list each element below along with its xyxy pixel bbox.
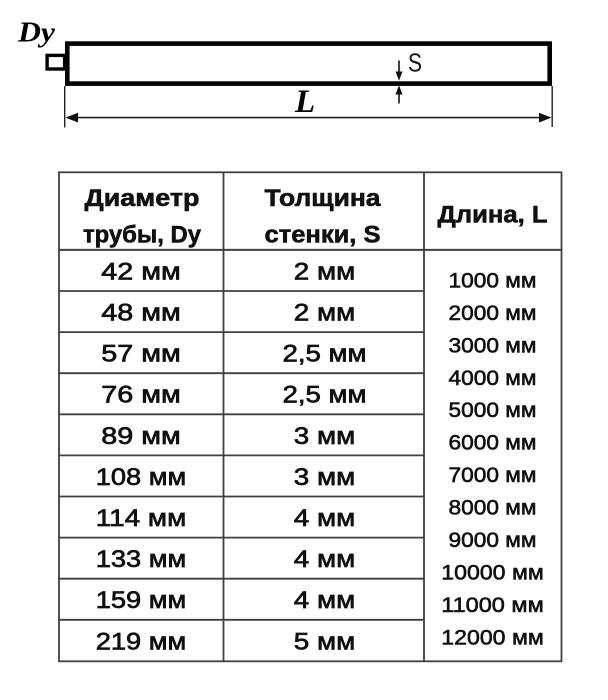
svg-text:Dy: Dy [17, 18, 56, 49]
svg-text:3 мм: 3 мм [294, 423, 356, 450]
svg-text:57 мм: 57 мм [101, 341, 181, 368]
svg-text:стенки, S: стенки, S [265, 222, 381, 249]
svg-text:4000 мм: 4000 мм [449, 366, 537, 390]
svg-text:2 мм: 2 мм [294, 258, 356, 285]
svg-text:8000 мм: 8000 мм [449, 496, 537, 520]
svg-text:2000 мм: 2000 мм [449, 301, 537, 325]
svg-text:10000 мм: 10000 мм [441, 561, 544, 585]
svg-text:5 мм: 5 мм [294, 628, 356, 655]
svg-text:4 мм: 4 мм [294, 587, 356, 614]
svg-text:89 мм: 89 мм [101, 423, 181, 450]
svg-text:1000 мм: 1000 мм [449, 268, 537, 292]
svg-text:2,5 мм: 2,5 мм [283, 382, 367, 409]
svg-text:L: L [294, 84, 315, 120]
svg-text:219 мм: 219 мм [96, 628, 187, 655]
svg-text:3000 мм: 3000 мм [449, 333, 537, 357]
svg-text:3 мм: 3 мм [294, 464, 356, 491]
svg-text:4 мм: 4 мм [294, 546, 356, 573]
svg-text:42 мм: 42 мм [101, 258, 181, 285]
svg-text:76 мм: 76 мм [101, 382, 181, 409]
svg-text:108 мм: 108 мм [96, 464, 187, 491]
svg-text:Диаметр: Диаметр [85, 185, 200, 212]
svg-text:5000 мм: 5000 мм [449, 398, 537, 422]
svg-text:S: S [408, 48, 422, 78]
svg-text:11000 мм: 11000 мм [441, 593, 544, 617]
svg-text:6000 мм: 6000 мм [449, 431, 537, 455]
svg-text:Длина, L: Длина, L [438, 202, 548, 229]
svg-text:4 мм: 4 мм [294, 505, 356, 532]
svg-text:114 мм: 114 мм [96, 505, 187, 532]
svg-text:133 мм: 133 мм [96, 546, 187, 573]
svg-text:трубы, Dy: трубы, Dy [83, 222, 202, 249]
svg-text:Толщина: Толщина [265, 185, 382, 212]
svg-text:7000 мм: 7000 мм [449, 463, 537, 487]
svg-text:2,5 мм: 2,5 мм [283, 341, 367, 368]
svg-text:12000 мм: 12000 мм [441, 625, 544, 649]
svg-text:159 мм: 159 мм [96, 587, 187, 614]
svg-text:48 мм: 48 мм [101, 299, 181, 326]
svg-text:2 мм: 2 мм [294, 299, 356, 326]
svg-text:9000 мм: 9000 мм [449, 528, 537, 552]
